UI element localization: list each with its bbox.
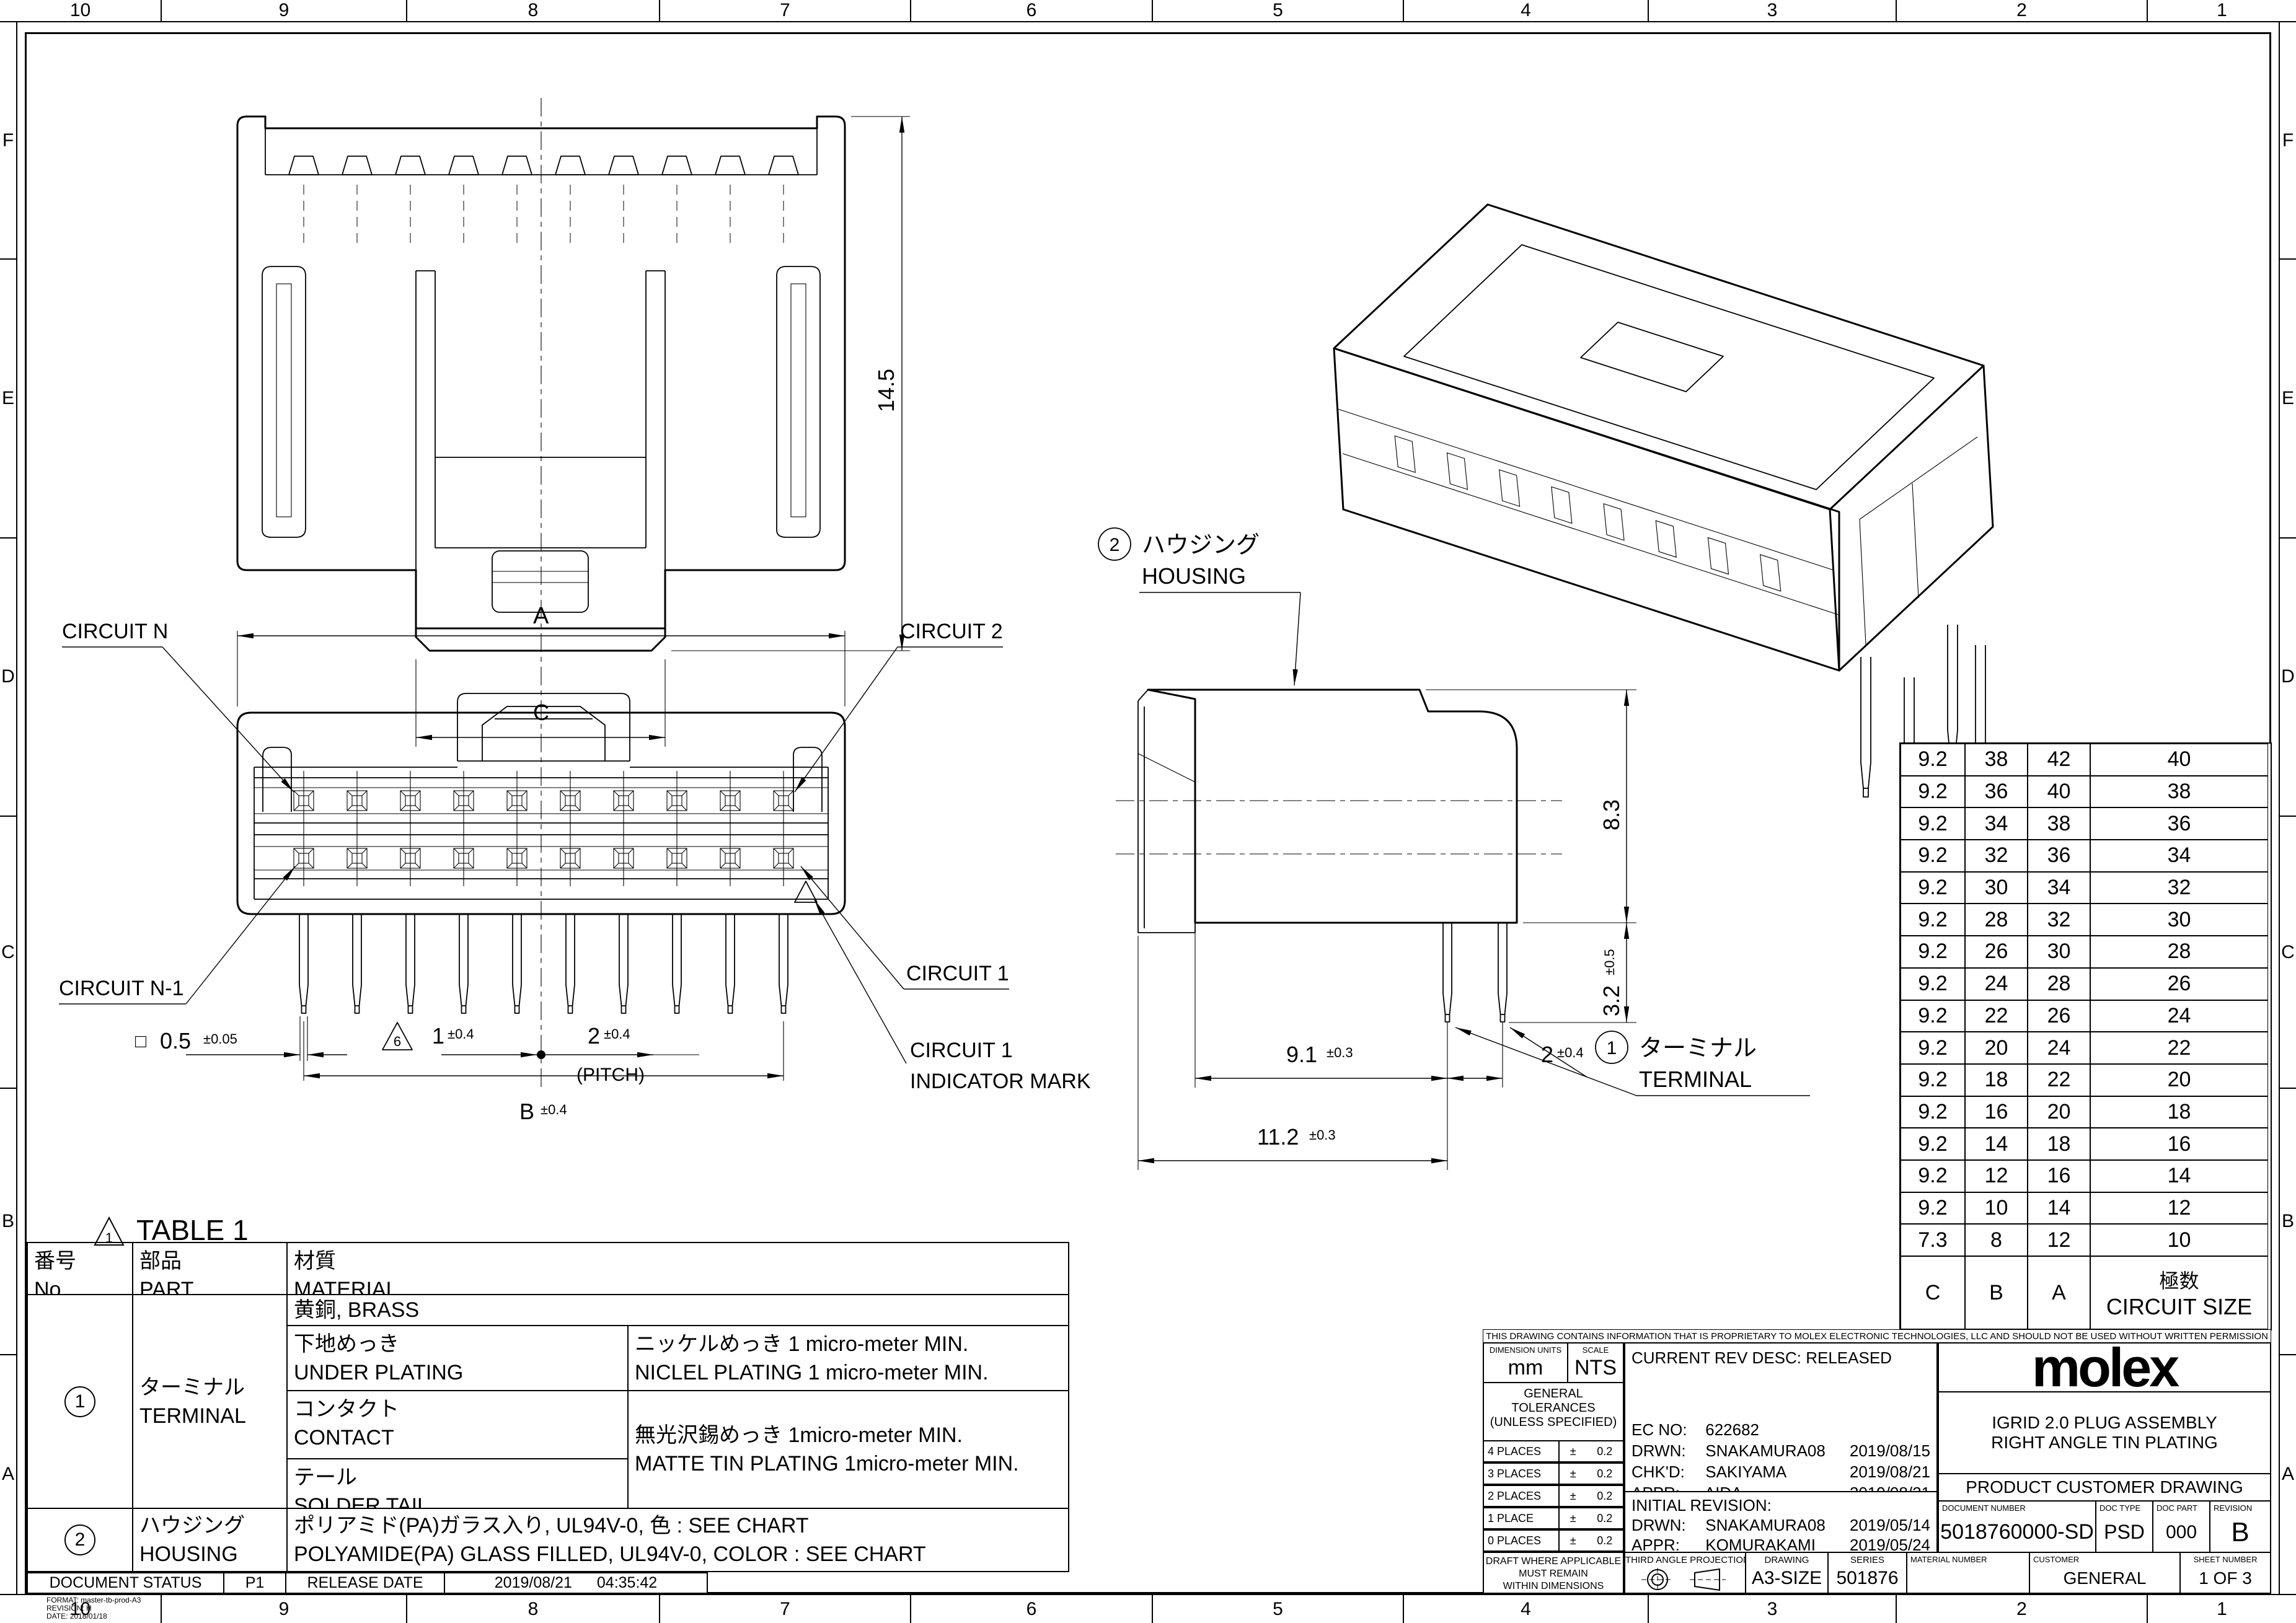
circuit-table-row: 9.2182220 (1901, 1064, 2271, 1096)
table1-nickel: ニッケルめっき 1 micro-meter MIN.NICLEL PLATING… (627, 1325, 1069, 1391)
ec-value: 622682 (1705, 1420, 1759, 1439)
drwn-label: DRWN: (1631, 1441, 1701, 1461)
table1-housing-material: ポリアミド(PA)ガラス入り, UL94V-0, 色 : SEE CHARTPO… (286, 1508, 1069, 1572)
init-drwn-value: SNAKAMURA08 (1705, 1516, 1826, 1534)
callout-1: 1 (1607, 1038, 1617, 1058)
circuit-table-cell: 14 (2090, 1160, 2268, 1192)
document-number-label: DOCUMENT NUMBER (1942, 1503, 2026, 1513)
draft-note-1: DRAFT WHERE APPLICABLE (1484, 1555, 1623, 1568)
circuit-table-cell: 30 (2028, 936, 2090, 968)
draft-note-2: MUST REMAIN (1484, 1568, 1623, 1580)
circuit-table-cell: 12 (2028, 1224, 2090, 1256)
circuit-table-row: 9.2364038 (1901, 776, 2271, 808)
face-view-linework: A CIRCUIT N CIRCUIT 2 CIRCUIT N-1 CIRCUI… (59, 603, 1091, 1124)
series-value: 501876 (1829, 1564, 1906, 1593)
dim-2-tol: ±0.4 (604, 1026, 630, 1042)
drwn-value: SNAKAMURA08 (1705, 1441, 1826, 1460)
table1-terminal-part: ターミナルTERMINAL (132, 1294, 288, 1509)
doc-type-value: PSD (2096, 1513, 2152, 1552)
third-angle-cell: THIRD ANGLE PROJECTION (1624, 1552, 1746, 1594)
circuit-table-cell: 9.2 (1901, 904, 1965, 936)
dim-pitch: (PITCH) (576, 1065, 645, 1085)
doc-type-label: DOC TYPE (2100, 1503, 2140, 1513)
label-housing-en: HOUSING (1142, 563, 1246, 589)
circuit-table-cell: 26 (1965, 936, 2028, 968)
circuit-table-cell: 9.2 (1901, 1160, 1965, 1192)
circuit-table-cell: 16 (2090, 1128, 2268, 1160)
circuit-table-cell: 9.2 (1901, 872, 1965, 904)
dim-a: A (533, 603, 549, 629)
circuit-table-cell: 14 (1965, 1128, 2028, 1160)
third-angle-label: THIRD ANGLE PROJECTION (1625, 1555, 1745, 1565)
circuit-table-cell: 10 (1965, 1192, 2028, 1225)
table1-header-part: 部品PART (132, 1242, 288, 1295)
circuit-table-cell: 34 (2028, 872, 2090, 904)
drawing-value: A3-SIZE (1746, 1564, 1827, 1593)
table1-header-no: 番号No. (27, 1242, 133, 1295)
drwn-date: 2019/08/15 (1850, 1441, 1930, 1461)
molex-logo: molex (1938, 1342, 2271, 1392)
circuit-table-cell: 32 (2028, 904, 2090, 936)
table1-housing-part: ハウジングHOUSING (132, 1508, 288, 1572)
circuit-table-cell: 9.2 (1901, 1096, 1965, 1128)
dim-2-val: 2 (588, 1023, 600, 1049)
footer-circuit-size-en: CIRCUIT SIZE (2106, 1294, 2252, 1320)
circuit-table-cell: 9.2 (1901, 1000, 1965, 1032)
circuit-table-cell: 30 (1965, 872, 2028, 904)
dim-1-tol: ±0.4 (448, 1026, 474, 1042)
front-view-linework: 14.5 C (237, 98, 910, 1088)
dim-1-val: 1 (432, 1023, 444, 1049)
dim-b-tol: ±0.4 (541, 1102, 567, 1117)
chkd-label: CHK'D: (1631, 1462, 1701, 1482)
ec-label: EC NO: (1631, 1420, 1701, 1440)
drawing-size-cell: DRAWING A3-SIZE (1745, 1552, 1829, 1594)
label-circuit-1: CIRCUIT 1 (906, 962, 1009, 985)
table1-brass: 黄銅, BRASS (286, 1294, 1069, 1326)
dim-2p-tol: ±0.4 (1557, 1045, 1584, 1060)
init-drwn-date: 2019/05/14 (1850, 1516, 1930, 1535)
circuit-table-cell: 9.2 (1901, 1192, 1965, 1225)
circuit-table-cell: 38 (2090, 776, 2268, 808)
circuit-table-cell: 34 (1965, 807, 2028, 840)
circuit-table-cell: 20 (2028, 1096, 2090, 1128)
circuit-table-cell: 9.2 (1901, 1128, 1965, 1160)
dim-sq-symbol: □ (135, 1031, 147, 1052)
status-bar-label: DOCUMENT STATUS (27, 1572, 224, 1594)
dim-9-1-tol: ±0.3 (1327, 1045, 1353, 1060)
isometric-view-linework (1334, 205, 1993, 817)
circuit-table-row: 9.2162018 (1901, 1096, 2271, 1128)
product-title-2: RIGHT ANGLE TIN PLATING (1991, 1433, 2218, 1453)
dim-11-2-val: 11.2 (1257, 1124, 1299, 1150)
circuit-table-cell: 20 (2090, 1064, 2268, 1096)
current-rev-desc: CURRENT REV DESC: RELEASED (1631, 1348, 1892, 1368)
circuit-table-row: 7.381210 (1901, 1224, 2271, 1256)
circuit-table-cell: 38 (2028, 807, 2090, 840)
third-angle-projection-icon (1633, 1567, 1738, 1593)
dim-8-3: 8.3 (1599, 799, 1624, 830)
revision-value: B (2210, 1513, 2270, 1552)
draft-note-3: WITHIN DIMENSIONS (1484, 1580, 1623, 1593)
side-view-linework: 8.3 3.2 ±0.5 9.1 ±0.3 2 ±0.4 11.2 ±0.3 2 (1098, 528, 1810, 1170)
circuit-table-row: 9.2141816 (1901, 1128, 2271, 1160)
places-label: 0 PLACES (1483, 1529, 1560, 1552)
chkd-date: 2019/08/21 (1850, 1462, 1930, 1482)
circuit-table-cell: 8 (1965, 1224, 2028, 1256)
circuit-table-cell: 20 (1965, 1032, 2028, 1064)
circuit-table-row: 9.2121614 (1901, 1160, 2271, 1192)
circuit-table-cell: 9.2 (1901, 968, 1965, 1000)
circuit-table-cell: 12 (1965, 1160, 2028, 1192)
doc-type-cell: DOC TYPE PSD (2095, 1500, 2153, 1553)
sheet-number-value: 1 OF 3 (2181, 1564, 2270, 1593)
circuit-table-cell: 40 (2090, 744, 2268, 776)
table1-header-material: 材質MATERIAL (286, 1242, 1069, 1295)
circuit-table-cell: 9.2 (1901, 840, 1965, 872)
label-housing-jp: ハウジング (1142, 532, 1260, 558)
doc-part-label: DOC PART (2157, 1503, 2197, 1513)
circuit-table-cell: 32 (2090, 872, 2268, 904)
product-title-1: IGRID 2.0 PLUG ASSEMBLY (1992, 1413, 2217, 1433)
circuit-table-footer: C B A 極数 CIRCUIT SIZE (1901, 1256, 2271, 1329)
circuit-table-cell: 18 (1965, 1064, 2028, 1096)
current-rev-cell: CURRENT REV DESC: RELEASED EC NO: 622682… (1624, 1342, 1938, 1492)
footer-col-b: B (1965, 1256, 2028, 1329)
sheet-number-cell: SHEET NUMBER 1 OF 3 (2179, 1552, 2271, 1594)
material-number-cell: MATERIAL NUMBER (1906, 1552, 2030, 1594)
circuit-table-cell: 16 (1965, 1096, 2028, 1128)
circuit-table-cell: 40 (2028, 776, 2090, 808)
places-value: ±0.2 (1558, 1507, 1624, 1529)
rev-triangle-6: 6 (394, 1034, 401, 1049)
scale-cell: SCALE NTS (1567, 1342, 1624, 1383)
circuit-table-row: 9.2343836 (1901, 807, 2271, 840)
footer-circuit-size-jp: 極数 (2159, 1265, 2199, 1294)
places-label: 2 PLACES (1483, 1485, 1560, 1507)
circuit-table-cell: 28 (2090, 936, 2268, 968)
dim-sq-tol: ±0.05 (203, 1031, 237, 1047)
circuit-table-cell: 22 (2028, 1064, 2090, 1096)
customer-cell: CUSTOMER GENERAL (2029, 1552, 2181, 1594)
footer-col-c: C (1901, 1256, 1965, 1329)
ec-row: EC NO: 622682 (1631, 1420, 1759, 1440)
dim-b-val: B (519, 1099, 534, 1124)
circuit-table-cell: 24 (1965, 968, 2028, 1000)
drawing-sheet: 10987654321 10987654321 FEDCBA FEDCBA (0, 0, 2296, 1623)
date-line: DATE: 2018/01/18 (46, 1612, 141, 1621)
release-date: 2019/08/21 (495, 1574, 572, 1592)
dim-9-1-val: 9.1 (1286, 1042, 1317, 1067)
circuit-table-cell: 9.2 (1901, 744, 1965, 776)
draft-note-cell: DRAFT WHERE APPLICABLE MUST REMAIN WITHI… (1483, 1552, 1624, 1594)
circuit-table-cell: 14 (2028, 1192, 2090, 1225)
doc-class-cell: PRODUCT CUSTOMER DRAWING (1938, 1473, 2271, 1502)
tolerances-title-1: GENERAL TOLERANCES (1486, 1387, 1620, 1415)
table1-solder-tail: テールSOLDER TAIL (286, 1458, 629, 1509)
label-terminal-en: TERMINAL (1639, 1067, 1752, 1092)
material-number-label: MATERIAL NUMBER (1910, 1555, 1987, 1564)
callout-2: 2 (1110, 535, 1120, 555)
chkd-row: CHK'D: SAKIYAMA (1631, 1462, 1786, 1482)
label-circuit-n: CIRCUIT N (62, 620, 168, 643)
drwn-row: DRWN: SNAKAMURA08 (1631, 1441, 1826, 1461)
doc-part-value: 000 (2153, 1513, 2209, 1552)
circuit-table-cell: 36 (2090, 807, 2268, 840)
circuit-table-cell: 9.2 (1901, 807, 1965, 840)
circuit-table-row: 9.2101412 (1901, 1192, 2271, 1225)
customer-label: CUSTOMER (2033, 1555, 2079, 1564)
table1-tin: 無光沢錫めっき 1micro-meter MIN.MATTE TIN PLATI… (627, 1390, 1069, 1509)
document-number-value: 5018760000-SD (1939, 1513, 2095, 1552)
init-drwn-label: DRWN: (1631, 1516, 1701, 1535)
table1-terminal-no: 1 (27, 1294, 133, 1509)
circuit-table-cell: 18 (2090, 1096, 2268, 1128)
circuit-table-cell: 26 (2090, 968, 2268, 1000)
circuit-table-cell: 22 (2090, 1032, 2268, 1064)
places-value: ±0.2 (1558, 1529, 1624, 1552)
circuit-table-cell: 28 (1965, 904, 2028, 936)
label-circuit-2: CIRCUIT 2 (900, 620, 1003, 643)
circuit-table-row: 9.2263028 (1901, 936, 2271, 968)
circuit-table-cell: 30 (2090, 904, 2268, 936)
release-date-label: RELEASE DATE (285, 1572, 445, 1594)
release-date-value: 2019/08/21 04:35:42 (444, 1572, 708, 1594)
molex-logo-text: molex (2032, 1336, 2177, 1399)
circuit-table-row: 9.2303432 (1901, 872, 2271, 904)
places-value: ±0.2 (1558, 1462, 1624, 1485)
init-drwn-row: DRWN: SNAKAMURA08 (1631, 1516, 1826, 1535)
dimension-units-value: mm (1484, 1353, 1567, 1382)
circuit-table-row: 9.2202422 (1901, 1032, 2271, 1064)
places-label: 3 PLACES (1483, 1462, 1560, 1485)
places-label: 1 PLACE (1483, 1507, 1560, 1529)
table1-housing-no: 2 (27, 1508, 133, 1572)
circuit-table-row: 9.2222624 (1901, 1000, 2271, 1032)
document-number-cell: DOCUMENT NUMBER 5018760000-SD (1938, 1500, 2096, 1553)
circuit-table-row: 9.2384240 (1901, 744, 2271, 776)
circuit-table-cell: 24 (2090, 1000, 2268, 1032)
chkd-value: SAKIYAMA (1705, 1462, 1786, 1481)
circuit-table-cell: 26 (2028, 1000, 2090, 1032)
table1-contact: コンタクトCONTACT (286, 1390, 629, 1459)
label-indicator-2: INDICATOR MARK (910, 1070, 1091, 1093)
dim-3-2-val: 3.2 (1599, 985, 1624, 1016)
release-time: 04:35:42 (597, 1574, 657, 1592)
revision-label: REVISION (2214, 1503, 2252, 1513)
label-terminal-jp: ターミナル (1639, 1036, 1757, 1062)
dimension-units-cell: DIMENSION UNITS mm (1483, 1342, 1568, 1383)
tolerances-title-2: (UNLESS SPECIFIED) (1486, 1415, 1620, 1430)
table1-under-plating: 下地めっきUNDER PLATING (286, 1325, 629, 1391)
footer-col-a: A (2028, 1256, 2090, 1329)
circuit-table-cell: 9.2 (1901, 776, 1965, 808)
circuit-table-cell: 9.2 (1901, 936, 1965, 968)
circuit-table-cell: 7.3 (1901, 1224, 1965, 1256)
format-note: FORMAT: master-tb-prod-A3 REVISION: H DA… (46, 1596, 141, 1621)
circuit-table-cell: 18 (2028, 1128, 2090, 1160)
status-bar-value: P1 (223, 1572, 286, 1594)
circuit-table-cell: 34 (2090, 840, 2268, 872)
dim-11-2-tol: ±0.3 (1309, 1127, 1336, 1143)
series-cell: SERIES 501876 (1827, 1552, 1907, 1594)
circuit-table-cell: 9.2 (1901, 1032, 1965, 1064)
dim-sq-val: 0.5 (160, 1028, 191, 1053)
circuit-table-cell: 38 (1965, 744, 2028, 776)
revision-cell: REVISION B (2209, 1500, 2271, 1553)
scale-value: NTS (1568, 1353, 1623, 1382)
circuit-table-cell: 36 (2028, 840, 2090, 872)
circuit-table-cell: 28 (2028, 968, 2090, 1000)
label-indicator-1: CIRCUIT 1 (910, 1039, 1013, 1062)
circuit-table-cell: 10 (2090, 1224, 2268, 1256)
circuit-table-cell: 36 (1965, 776, 2028, 808)
circuit-table-cell: 42 (2028, 744, 2090, 776)
places-value: ±0.2 (1558, 1485, 1624, 1507)
circuit-table-cell: 12 (2090, 1192, 2268, 1225)
customer-value: GENERAL (2030, 1564, 2179, 1593)
product-title-cell: IGRID 2.0 PLUG ASSEMBLY RIGHT ANGLE TIN … (1938, 1391, 2271, 1474)
dim-3-2-tol: ±0.5 (1602, 949, 1617, 975)
footer-circuit-size: 極数 CIRCUIT SIZE (2090, 1256, 2268, 1329)
places-label: 4 PLACES (1483, 1440, 1560, 1462)
circuit-table-cell: 16 (2028, 1160, 2090, 1192)
general-tolerances-cell: GENERAL TOLERANCES (UNLESS SPECIFIED) AN… (1483, 1382, 1624, 1441)
sheet-number-label: SHEET NUMBER (2181, 1555, 2270, 1564)
doc-part-cell: DOC PART 000 (2152, 1500, 2210, 1553)
dim-14-5: 14.5 (873, 369, 899, 412)
circuit-table-row: 9.2242826 (1901, 968, 2271, 1000)
initial-rev-cell: INITIAL REVISION: DRWN: SNAKAMURA08 2019… (1624, 1491, 1938, 1553)
circuit-table-cell: 9.2 (1901, 1064, 1965, 1096)
circuit-size-table: 9.23842409.23640389.23438369.23236349.23… (1899, 742, 2272, 1331)
circuit-table-cell: 22 (1965, 1000, 2028, 1032)
circuit-table-cell: 32 (1965, 840, 2028, 872)
circuit-table-row: 9.2323634 (1901, 840, 2271, 872)
places-value: ±0.2 (1558, 1440, 1624, 1462)
circuit-table-cell: 24 (2028, 1032, 2090, 1064)
circuit-table-row: 9.2283230 (1901, 904, 2271, 936)
label-circuit-n1: CIRCUIT N-1 (59, 977, 184, 1000)
initial-rev-label: INITIAL REVISION: (1631, 1496, 1772, 1515)
